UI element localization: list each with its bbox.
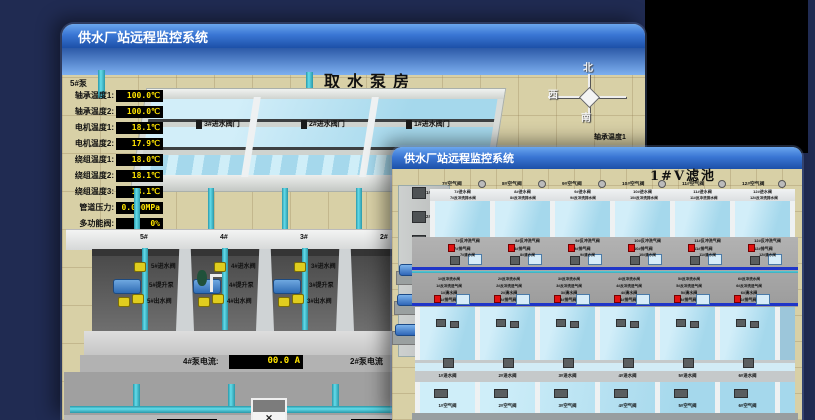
- air-valve-label: 5#空气阀: [672, 404, 702, 408]
- vent-valve-label: 11#排气阀: [694, 247, 712, 251]
- cell-divider-wall: [535, 382, 540, 413]
- cell-device-icon[interactable]: [690, 321, 699, 328]
- gallery-valve-icon[interactable]: [630, 256, 640, 265]
- inlet-valve-label: 2#进水阀: [492, 374, 522, 378]
- gallery-valve-icon[interactable]: [690, 256, 700, 265]
- filter-cell-water: [435, 201, 490, 237]
- cell-divider-wall: [790, 201, 795, 237]
- vent-valve-label: 5#排气阀: [680, 298, 696, 302]
- clean-water-valve-label: 7#清水阀: [455, 253, 480, 257]
- vent-valve-label: 2#排气阀: [500, 298, 516, 302]
- cell-device-icon[interactable]: [616, 319, 626, 327]
- backwash-air-inlet-label: 4#反冲洗进气阀: [616, 284, 642, 288]
- front-window-title: 供水厂站远程监控系统: [404, 150, 514, 166]
- clean-water-valve-label: 9#清水阀: [575, 253, 600, 257]
- filter-cell-water: [615, 201, 670, 237]
- channel-base: [412, 413, 798, 420]
- top-cells-wall: 7#进水阀7#反冲洗排水阀8#进水阀8#反冲洗排水阀9#进水阀9#反冲洗排水阀1…: [430, 189, 795, 201]
- air-valve-label: 8#空气阀: [502, 182, 522, 187]
- cell-divider-wall: [475, 382, 480, 413]
- cell-inlet-valve-label: 10#进水阀: [629, 190, 657, 194]
- air-valve-icon[interactable]: [718, 180, 726, 188]
- backwash-air-inlet-label: 3#反冲洗进气阀: [556, 284, 582, 288]
- pump-riser-pipe: [302, 248, 308, 330]
- top-filter-cells: [430, 201, 795, 237]
- water-seal-box-icon[interactable]: [636, 294, 650, 305]
- cell-divider-wall: [415, 382, 420, 413]
- inlet-valve-label: 1#进水阀: [432, 374, 462, 378]
- vent-valve-label: 6#排气阀: [740, 298, 756, 302]
- air-valve-device-icon[interactable]: [674, 389, 688, 398]
- pump4-current-label: 4#泵电流:: [183, 358, 219, 366]
- backwash-water-valve-label: 4#反冲洗水阀: [616, 277, 642, 281]
- cell-drain-valve-label: 11#反冲洗排水阀: [690, 196, 715, 200]
- backwash-air-inlet-label: 2#反冲洗进气阀: [496, 284, 522, 288]
- backwash-air-inlet-label: 5#反冲洗进气阀: [676, 284, 702, 288]
- outlet-pipe-stub: [133, 384, 140, 408]
- cell-device-icon[interactable]: [570, 321, 579, 328]
- vent-valve-label: 9#排气阀: [574, 247, 590, 251]
- lift-pump-body[interactable]: [113, 279, 141, 294]
- pump-inlet-valve-label: 4#进水阀: [231, 264, 256, 270]
- back-window-title: 供水厂站远程监控系统: [78, 27, 208, 46]
- pump-outlet-valve-label: 5#出水阀: [147, 299, 172, 305]
- backwash-water-valve-label: 6#反冲洗水阀: [736, 277, 762, 281]
- central-pipe-gallery: 7#反冲洗气阀7#排气阀7#清水阀8#反冲洗气阀8#排气阀8#清水阀9#反冲洗气…: [412, 237, 798, 307]
- backwash-water-valve-label: 5#反冲洗水阀: [676, 277, 702, 281]
- inlet-valve-ledge: 1#进水阀2#进水阀3#进水阀4#进水阀5#进水阀6#进水阀: [415, 360, 795, 382]
- ledge-water-strip: [415, 363, 795, 371]
- filter-cell-water: [675, 201, 730, 237]
- backwash-water-valve-label: 2#反冲洗水阀: [496, 277, 522, 281]
- inlet-valve-label: 6#进水阀: [732, 374, 762, 378]
- backwash-air-valve-label: 11#反冲洗气阀: [694, 239, 722, 243]
- gallery-valve-icon[interactable]: [750, 256, 760, 265]
- clean-water-valve-label: 8#清水阀: [515, 253, 540, 257]
- air-valve-label: 9#空气阀: [562, 182, 582, 187]
- outlet-valve-icon[interactable]: [198, 297, 210, 307]
- gallery-cyan-pipe: [412, 271, 798, 273]
- backwash-air-inlet-label: 6#反冲洗进气阀: [736, 284, 762, 288]
- air-valve-device-icon[interactable]: [554, 389, 568, 398]
- clean-water-valve-label: 11#清水阀: [695, 253, 720, 257]
- air-valve-icon[interactable]: [598, 180, 606, 188]
- backwash-air-inlet-label: 1#反冲洗进气阀: [436, 284, 462, 288]
- air-valve-label: 7#空气阀: [442, 182, 462, 187]
- air-valve-icon[interactable]: [658, 180, 666, 188]
- inlet-valve-icon[interactable]: [683, 358, 694, 368]
- air-valve-icon[interactable]: [778, 180, 786, 188]
- outlet-valve-icon[interactable]: [292, 294, 304, 304]
- water-seal-box-icon[interactable]: [576, 294, 590, 305]
- water-seal-box-icon[interactable]: [516, 294, 530, 305]
- cell-device-icon[interactable]: [736, 319, 746, 327]
- inlet-valve-icon[interactable]: [294, 262, 306, 272]
- cell-drain-valve-label: 9#反冲洗排水阀: [570, 196, 595, 200]
- cell-device-icon[interactable]: [630, 321, 639, 328]
- cell-device-icon[interactable]: [676, 319, 686, 327]
- air-valve-icon[interactable]: [478, 180, 486, 188]
- water-seal-box-icon[interactable]: [756, 294, 770, 305]
- inlet-valve-icon[interactable]: [443, 358, 454, 368]
- vent-valve-label: 12#排气阀: [754, 247, 773, 251]
- pump-inlet-valve-label: 5#进水阀: [151, 264, 176, 270]
- backwash-air-valve-label: 9#反冲洗气阀: [574, 239, 602, 243]
- backwash-air-valve-label: 7#反冲洗气阀: [454, 239, 482, 243]
- water-seal-box-icon[interactable]: [696, 294, 710, 305]
- vent-valve-label: 1#排气阀: [440, 298, 456, 302]
- cell-drain-valve-label: 8#反冲洗排水阀: [510, 196, 535, 200]
- desktop-background: 供水厂站远程监控系统 取水泵房 3#进水阀门2#进: [0, 0, 815, 420]
- filter-cell-water: [420, 307, 475, 360]
- wall-pump-icon[interactable]: [412, 211, 426, 223]
- air-valve-label: 2#空气阀: [492, 404, 522, 408]
- cell-drain-valve-label: 7#反冲洗排水阀: [450, 196, 475, 200]
- outlet-pipe-stub: [228, 384, 235, 408]
- cell-divider-wall: [655, 382, 660, 413]
- front-window-titlebar[interactable]: 供水厂站远程监控系统: [392, 147, 802, 169]
- cell-device-icon[interactable]: [450, 321, 459, 328]
- backwash-air-valve-label: 10#反冲洗气阀: [634, 239, 662, 243]
- cell-device-icon[interactable]: [750, 321, 759, 328]
- backwash-water-valve-label: 1#反冲洗水阀: [436, 277, 462, 281]
- air-valve-device-icon[interactable]: [494, 389, 508, 398]
- clean-water-valve-label: 10#清水阀: [635, 253, 660, 257]
- back-window-titlebar[interactable]: 供水厂站远程监控系统: [62, 24, 645, 48]
- flow-meter[interactable]: ✕: [251, 398, 287, 420]
- outlet-main-pipe: [70, 406, 392, 413]
- front-window-v-filter[interactable]: 供水厂站远程监控系统 1#V滤池 1#水泵2#水泵3#水泵1#风机2#风机3#风…: [392, 147, 802, 420]
- cell-divider-wall: [775, 307, 780, 360]
- filter-cell-water: [600, 307, 655, 360]
- air-valve-label: 1#空气阀: [432, 404, 462, 408]
- pump-outlet-valve-label: 4#出水阀: [227, 299, 252, 305]
- inlet-valve-icon[interactable]: [214, 262, 226, 272]
- cell-drain-valve-label: 10#反冲洗排水阀: [630, 196, 655, 200]
- pump-outlet-valve-label: 3#出水阀: [307, 299, 332, 305]
- inlet-valve-icon[interactable]: [743, 358, 754, 368]
- filter-cell-water: [495, 201, 550, 237]
- cell-device-icon[interactable]: [436, 319, 446, 327]
- inlet-valve-icon[interactable]: [623, 358, 634, 368]
- clean-water-valve-label: 12#清水阀: [755, 253, 780, 257]
- cell-inlet-valve-label: 8#进水阀: [509, 190, 537, 194]
- pump4-current-value: 00.0 A: [229, 355, 303, 369]
- inlet-valve-label: 3#进水阀: [552, 374, 582, 378]
- lift-pump-label: 5#提升泵: [149, 283, 174, 289]
- air-valve-label-row: 7#空气阀8#空气阀9#空气阀10#空气阀11#空气阀12#空气阀: [430, 178, 798, 188]
- air-valve-label: 10#空气阀: [622, 182, 644, 187]
- backwash-air-valve-label: 12#反冲洗气阀: [754, 239, 782, 243]
- cell-device-icon[interactable]: [556, 319, 566, 327]
- cell-divider-wall: [595, 382, 600, 413]
- gallery-valve-icon[interactable]: [510, 256, 520, 265]
- water-seal-box-icon[interactable]: [456, 294, 470, 305]
- air-valve-label: 6#空气阀: [732, 404, 762, 408]
- filter-cell-water: [660, 307, 715, 360]
- outlet-pipe-stub: [332, 384, 339, 408]
- gallery-valve-icon[interactable]: [570, 256, 580, 265]
- pump-riser-pipe: [142, 248, 148, 330]
- white-pipe: [210, 274, 213, 292]
- inlet-valve-icon[interactable]: [503, 358, 514, 368]
- cell-drain-valve-label: 12#反冲洗排水阀: [750, 196, 775, 200]
- v-filter-scene: 1#V滤池 1#水泵2#水泵3#水泵1#风机2#风机3#风机 7#空气阀8#空气…: [392, 169, 802, 420]
- backwash-water-valve-label: 3#反冲洗水阀: [556, 277, 582, 281]
- vent-valve-label: 7#排气阀: [454, 247, 470, 251]
- inlet-valve-label: 5#进水阀: [672, 374, 702, 378]
- pump2-current-label: 2#泵电流: [350, 358, 383, 366]
- air-valve-icon[interactable]: [538, 180, 546, 188]
- cell-divider-wall: [775, 382, 780, 413]
- vent-valve-label: 10#排气阀: [634, 247, 653, 251]
- outlet-valve-icon[interactable]: [118, 297, 130, 307]
- wall-pump-icon[interactable]: [412, 187, 426, 199]
- outlet-valve-icon[interactable]: [212, 294, 224, 304]
- filter-cell-water: [720, 307, 775, 360]
- air-valve-device-icon[interactable]: [434, 389, 448, 398]
- gallery-valve-icon[interactable]: [450, 256, 460, 265]
- flow-meter-valve-icon: ✕: [253, 412, 285, 420]
- pump-inlet-valve-label: 3#进水阀: [311, 264, 336, 270]
- filter-cell-water: [540, 307, 595, 360]
- air-valve-label: 11#空气阀: [682, 182, 704, 187]
- cell-device-icon[interactable]: [510, 321, 519, 328]
- vent-valve-label: 3#排气阀: [560, 298, 576, 302]
- air-valve-label: 12#空气阀: [742, 182, 764, 187]
- backwash-air-valve-label: 8#反冲洗气阀: [514, 239, 542, 243]
- lift-pump-label: 4#提升泵: [229, 283, 254, 289]
- air-valve-label: 3#空气阀: [552, 404, 582, 408]
- filter-cell-water: [735, 201, 790, 237]
- operator-figure: [197, 270, 207, 286]
- air-valve-channel: 1#空气阀2#空气阀3#空气阀4#空气阀5#空气阀6#空气阀: [415, 382, 795, 413]
- filter-cell-water: [555, 201, 610, 237]
- vent-valve-label: 4#排气阀: [620, 298, 636, 302]
- inlet-valve-icon[interactable]: [134, 262, 146, 272]
- bottom-filter-cells: [415, 307, 795, 360]
- inlet-valve-label: 4#进水阀: [612, 374, 642, 378]
- cell-divider-wall: [715, 382, 720, 413]
- lift-pump-body[interactable]: [273, 279, 301, 294]
- cell-inlet-valve-label: 11#进水阀: [689, 190, 717, 194]
- outlet-valve-icon[interactable]: [132, 294, 144, 304]
- vent-valve-label: 8#排气阀: [514, 247, 530, 251]
- cell-inlet-valve-label: 12#进水阀: [749, 190, 777, 194]
- clean-water-pipe: [412, 267, 798, 270]
- cell-device-icon[interactable]: [496, 319, 506, 327]
- lift-pump-label: 3#提升泵: [309, 283, 334, 289]
- filter-cell-water: [480, 307, 535, 360]
- cell-inlet-valve-label: 7#进水阀: [449, 190, 477, 194]
- air-valve-label: 4#空气阀: [612, 404, 642, 408]
- cell-inlet-valve-label: 9#进水阀: [569, 190, 597, 194]
- background-window-panel: [645, 0, 808, 153]
- inlet-valve-icon[interactable]: [563, 358, 574, 368]
- pump-riser-pipe: [222, 248, 228, 330]
- outlet-valve-icon[interactable]: [278, 297, 290, 307]
- air-valve-device-icon[interactable]: [614, 389, 628, 398]
- air-valve-device-icon[interactable]: [734, 389, 748, 398]
